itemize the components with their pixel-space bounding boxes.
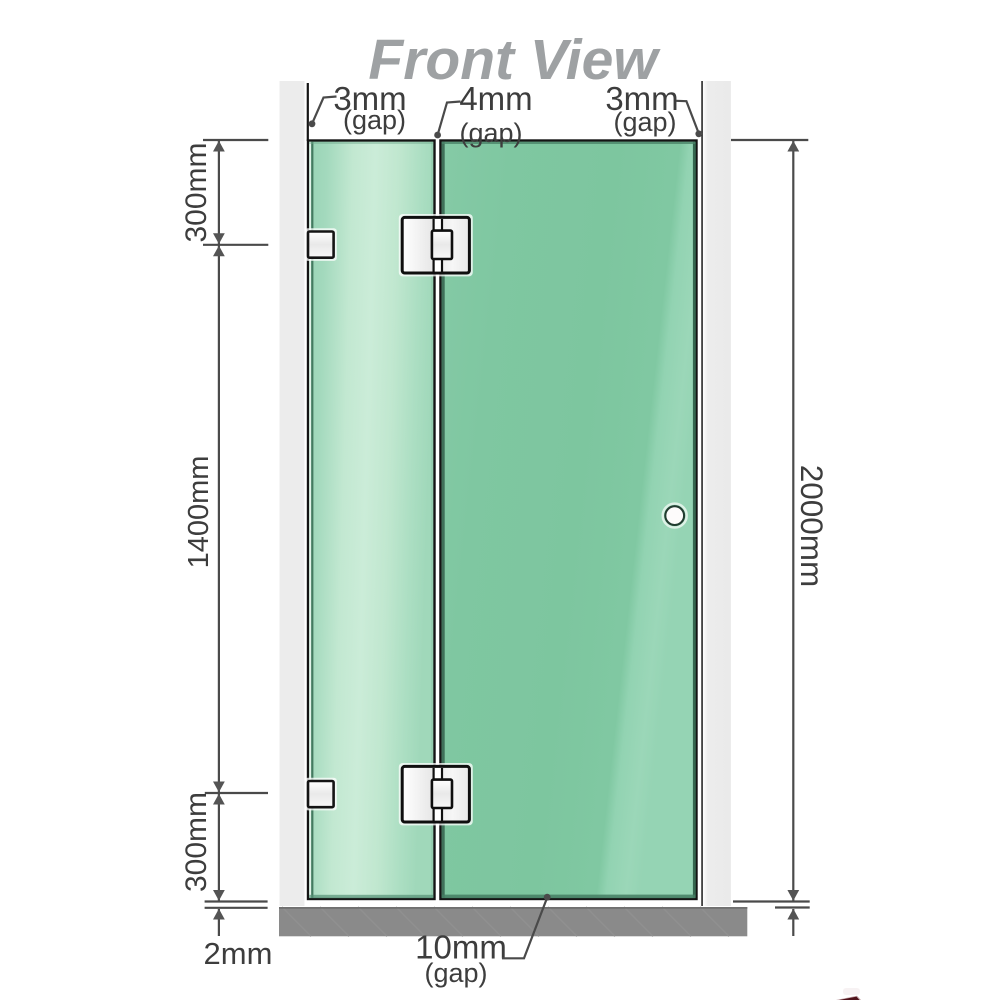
svg-text:2000mm: 2000mm: [794, 465, 830, 588]
svg-text:(gap): (gap): [424, 958, 487, 988]
svg-text:4mm: 4mm: [459, 80, 532, 117]
svg-text:300mm: 300mm: [180, 142, 213, 242]
svg-text:1400mm: 1400mm: [183, 456, 215, 569]
svg-text:(gap): (gap): [613, 107, 676, 137]
svg-text:300mm: 300mm: [180, 792, 213, 892]
svg-text:(gap): (gap): [343, 105, 406, 135]
svg-text:(gap): (gap): [459, 118, 522, 148]
svg-text:2mm: 2mm: [204, 936, 273, 971]
